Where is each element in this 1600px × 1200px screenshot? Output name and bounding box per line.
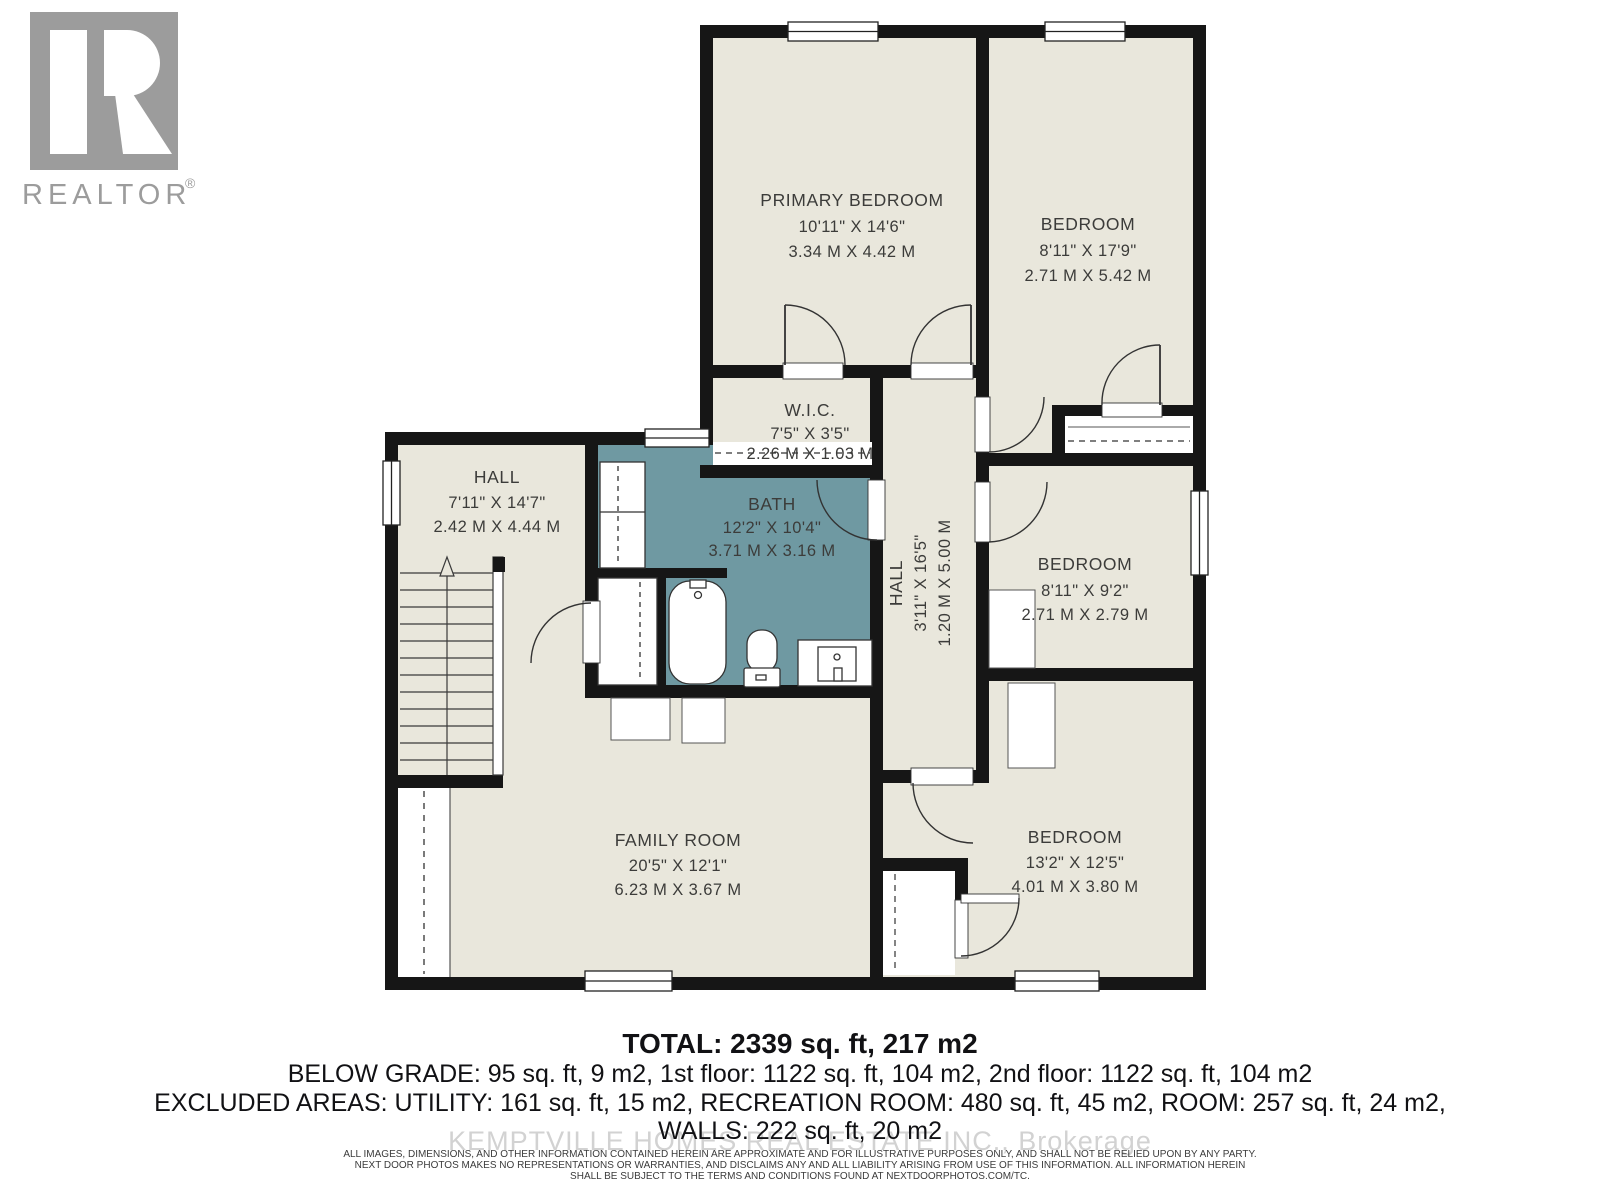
svg-text:BEDROOM: BEDROOM (1041, 214, 1136, 234)
bedroom-bot-closet (883, 871, 955, 975)
svg-text:7'5" X 3'5": 7'5" X 3'5" (770, 425, 849, 443)
svg-text:2.71 M X 2.79 M: 2.71 M X 2.79 M (1021, 606, 1148, 624)
svg-text:1.20 M X 5.00 M: 1.20 M X 5.00 M (936, 519, 954, 646)
bedroom-tr-closet (1065, 416, 1193, 453)
door-gap-primary-hall (911, 363, 973, 379)
svg-text:BEDROOM: BEDROOM (1038, 554, 1133, 574)
linen-closet (598, 578, 657, 685)
door-gap-bedroom-bot (911, 768, 973, 785)
summary-line-excluded: EXCLUDED AREAS: UTILITY: 161 sq. ft, 15 … (0, 1089, 1600, 1118)
door-gap-bedroom-mid (975, 482, 990, 542)
svg-text:3.71 M X 3.16 M: 3.71 M X 3.16 M (708, 542, 835, 560)
summary-total: TOTAL: 2339 sq. ft, 217 m2 (0, 1028, 1600, 1060)
floor-plan: PRIMARY BEDROOM 10'11" X 14'6" 3.34 M X … (378, 12, 1214, 1000)
svg-text:2.71 M X 5.42 M: 2.71 M X 5.42 M (1024, 267, 1151, 285)
label-bedroom-top-right: BEDROOM 8'11" X 17'9" 2.71 M X 5.42 M (1024, 214, 1151, 285)
bath-counter (600, 462, 645, 568)
svg-text:13'2" X 12'5": 13'2" X 12'5" (1026, 854, 1124, 872)
summary-line-walls: WALLS: 222 sq. ft, 20 m2 (0, 1117, 1600, 1146)
summary-line-grade-floors: BELOW GRADE: 95 sq. ft, 9 m2, 1st floor:… (0, 1060, 1600, 1089)
stair-rail (493, 557, 503, 775)
family-room-cabinet-2 (682, 698, 725, 743)
label-family-room: FAMILY ROOM 20'5" X 12'1" 6.23 M X 3.67 … (614, 830, 741, 899)
realtor-logo: REALTOR ® (22, 6, 212, 221)
door-gap-corridor (975, 397, 990, 452)
door-gap-bedroom-tr (1102, 403, 1162, 417)
svg-text:4.01 M X 3.80 M: 4.01 M X 3.80 M (1011, 878, 1138, 896)
label-bedroom-bottom: BEDROOM 13'2" X 12'5" 4.01 M X 3.80 M (1011, 827, 1138, 896)
sink-faucet-icon (834, 654, 840, 660)
bathtub-drain-icon (695, 592, 702, 599)
svg-text:2.42 M X 4.44 M: 2.42 M X 4.44 M (433, 518, 560, 536)
svg-text:BATH: BATH (748, 494, 796, 514)
svg-text:12'2" X 10'4": 12'2" X 10'4" (723, 519, 821, 537)
door-gap-primary-wic (783, 363, 843, 379)
door-leaf-closet-bot (961, 894, 1019, 903)
svg-text:PRIMARY BEDROOM: PRIMARY BEDROOM (760, 190, 943, 210)
realtor-logo-wordmark: REALTOR (22, 179, 191, 211)
toilet-button-icon (756, 675, 766, 680)
svg-text:BEDROOM: BEDROOM (1028, 827, 1123, 847)
door-gap-closet-bot (955, 900, 968, 958)
sink-handle-icon (834, 668, 842, 681)
svg-text:2.26 M X 1.03 M: 2.26 M X 1.03 M (746, 445, 873, 463)
disclaimer-line-3: SHALL BE SUBJECT TO THE TERMS AND CONDIT… (0, 1172, 1600, 1183)
door-gap-bath-east (868, 480, 885, 540)
disclaimer-line-1: ALL IMAGES, DIMENSIONS, AND OTHER INFORM… (0, 1150, 1600, 1161)
svg-text:10'11" X 14'6": 10'11" X 14'6" (799, 218, 906, 236)
stair-newel-post (493, 557, 505, 572)
svg-text:6.23 M X 3.67 M: 6.23 M X 3.67 M (614, 881, 741, 899)
svg-text:3.34 M X 4.42 M: 3.34 M X 4.42 M (788, 243, 915, 261)
disclaimer-line-2: NEXT DOOR PHOTOS MAKES NO REPRESENTATION… (0, 1161, 1600, 1172)
svg-text:20'5" X 12'1": 20'5" X 12'1" (629, 857, 727, 875)
toilet-bowl-icon (747, 630, 777, 672)
svg-text:FAMILY ROOM: FAMILY ROOM (615, 830, 742, 850)
realtor-logo-r-stem (50, 30, 87, 154)
page-canvas: REALTOR ® (0, 0, 1600, 1200)
svg-text:HALL: HALL (474, 467, 520, 487)
door-gap-bath-west (583, 601, 600, 663)
bathtub-faucet-icon (690, 580, 706, 588)
svg-text:HALL: HALL (886, 560, 906, 606)
svg-text:W.I.C.: W.I.C. (784, 400, 835, 420)
svg-text:8'11" X 9'2": 8'11" X 9'2" (1041, 582, 1129, 600)
svg-text:8'11" X 17'9": 8'11" X 17'9" (1039, 242, 1136, 260)
bedroom-bot-upper-closet (1008, 683, 1055, 768)
family-room-cabinet-1 (611, 698, 670, 740)
realtor-logo-registered-mark: ® (185, 175, 196, 191)
bedroom-mid-closet (989, 590, 1035, 668)
svg-text:3'11" X 16'5": 3'11" X 16'5" (912, 534, 930, 631)
svg-text:7'11" X 14'7": 7'11" X 14'7" (448, 494, 545, 512)
